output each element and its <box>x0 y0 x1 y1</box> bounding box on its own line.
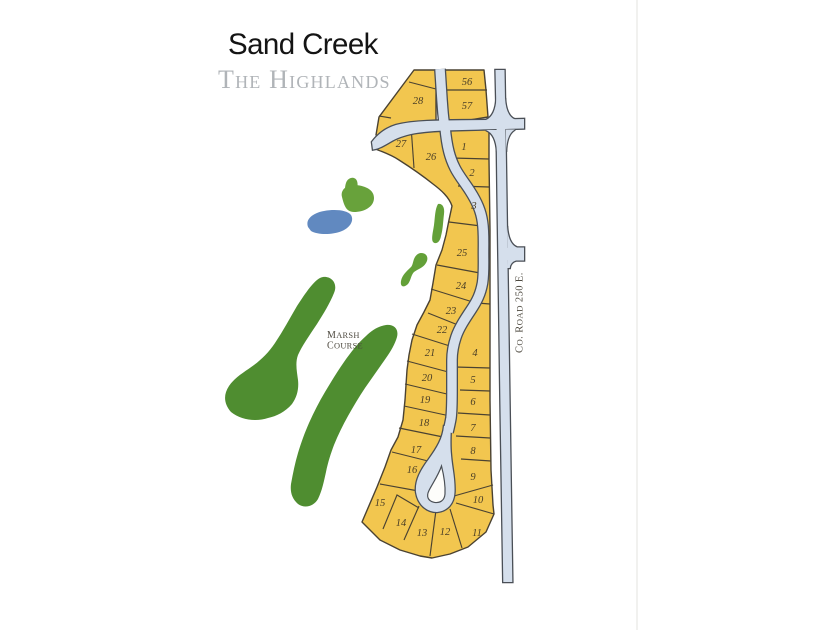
svg-text:15: 15 <box>375 498 386 509</box>
svg-text:11: 11 <box>472 528 482 539</box>
svg-text:COURSE: COURSE <box>327 341 363 352</box>
svg-text:7: 7 <box>470 423 476 434</box>
svg-text:12: 12 <box>440 527 451 538</box>
svg-text:6: 6 <box>470 397 476 408</box>
svg-text:2: 2 <box>469 168 475 179</box>
svg-text:18: 18 <box>419 418 430 429</box>
svg-text:4: 4 <box>472 348 478 359</box>
svg-text:10: 10 <box>473 495 484 506</box>
svg-text:1: 1 <box>461 142 466 153</box>
svg-text:17: 17 <box>411 445 422 456</box>
svg-text:3: 3 <box>470 201 476 212</box>
svg-text:57: 57 <box>462 101 473 112</box>
svg-text:13: 13 <box>417 528 428 539</box>
svg-text:CO. ROAD 250 E.: CO. ROAD 250 E. <box>515 272 526 353</box>
svg-text:24: 24 <box>456 281 467 292</box>
svg-text:20: 20 <box>422 373 433 384</box>
svg-text:5: 5 <box>470 375 475 386</box>
svg-text:28: 28 <box>413 96 424 107</box>
svg-text:MARSH: MARSH <box>327 330 360 341</box>
svg-text:27: 27 <box>396 139 407 150</box>
svg-text:19: 19 <box>420 395 431 406</box>
svg-text:25: 25 <box>457 248 468 259</box>
svg-text:8: 8 <box>470 446 476 457</box>
svg-text:16: 16 <box>407 465 418 476</box>
svg-text:14: 14 <box>396 518 407 529</box>
svg-text:21: 21 <box>425 348 436 359</box>
svg-text:23: 23 <box>446 306 457 317</box>
svg-text:22: 22 <box>437 325 448 336</box>
svg-text:26: 26 <box>426 152 437 163</box>
svg-text:56: 56 <box>462 77 473 88</box>
svg-text:9: 9 <box>470 472 476 483</box>
